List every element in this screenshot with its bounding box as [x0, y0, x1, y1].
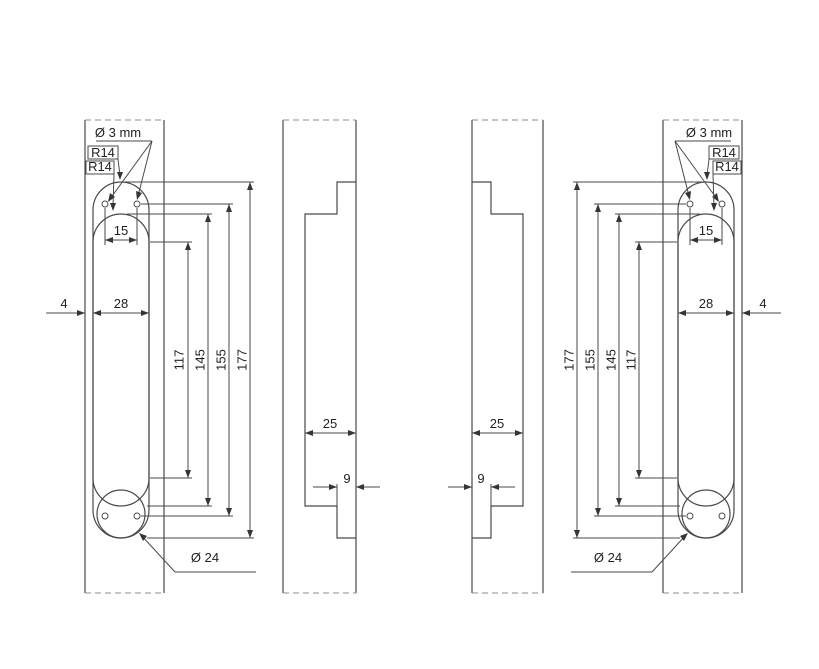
- label-outer-radius: R14: [91, 145, 115, 160]
- label-outer-radius: R14: [712, 145, 736, 160]
- section-view-right: 25 9: [448, 120, 543, 593]
- dim-slot-width: 28: [699, 296, 713, 311]
- front-view-right: 4 28 15 177 155: [561, 120, 781, 593]
- dim-edge-gap: 4: [60, 296, 67, 311]
- dim-inner-length: 145: [192, 349, 207, 371]
- screw-hole: [687, 513, 693, 519]
- label-pocket-dia: Ø 24: [594, 550, 622, 565]
- screw-hole: [134, 513, 140, 519]
- inner-stadium: [93, 214, 149, 506]
- inner-stadium: [678, 214, 734, 506]
- dim-outer-length: 177: [561, 349, 576, 371]
- dim-hole-row-pitch: 155: [213, 349, 228, 371]
- screw-hole: [719, 513, 725, 519]
- dim-hole-row-pitch: 155: [582, 349, 597, 371]
- screw-hole: [134, 201, 140, 207]
- dim-inner-straight: 117: [623, 350, 638, 371]
- screw-hole: [102, 513, 108, 519]
- label-pocket-dia: Ø 24: [191, 550, 219, 565]
- screw-hole: [719, 201, 725, 207]
- technical-drawing-canvas: 4 28 15 117 145: [0, 0, 819, 669]
- board-outline: [663, 120, 742, 593]
- label-hole-dia: Ø 3 mm: [686, 125, 732, 140]
- dim-slot-width: 28: [114, 296, 128, 311]
- screw-hole: [102, 201, 108, 207]
- screw-hole: [687, 201, 693, 207]
- dimensions: 25 9: [448, 416, 523, 506]
- dimensions: 25 9: [305, 416, 380, 506]
- board-outline: [472, 120, 543, 593]
- dim-step-depth: 9: [477, 471, 484, 486]
- drawing-page: 4 28 15 117 145: [0, 0, 819, 669]
- board-outline: [85, 120, 164, 593]
- dimensions: 4 28 15 117 145: [46, 182, 254, 538]
- dim-step-depth: 9: [343, 471, 350, 486]
- board-outline: [283, 120, 356, 593]
- dim-inner-length: 145: [603, 349, 618, 371]
- dim-recess-depth: 25: [490, 416, 504, 431]
- dim-recess-depth: 25: [323, 416, 337, 431]
- screw-holes: [687, 201, 725, 519]
- label-hole-dia: Ø 3 mm: [95, 125, 141, 140]
- label-inner-radius: R14: [88, 159, 112, 174]
- label-inner-radius: R14: [715, 159, 739, 174]
- dim-edge-gap: 4: [759, 296, 766, 311]
- dim-hole-pitch: 15: [699, 223, 713, 238]
- dim-hole-pitch: 15: [114, 223, 128, 238]
- section-view-left: 25 9: [283, 120, 380, 593]
- dim-outer-length: 177: [234, 349, 249, 371]
- dimensions: 4 28 15 177 155: [561, 182, 781, 538]
- front-view-left: 4 28 15 117 145: [46, 120, 256, 593]
- screw-holes: [102, 201, 140, 519]
- dim-inner-straight: 117: [171, 350, 186, 371]
